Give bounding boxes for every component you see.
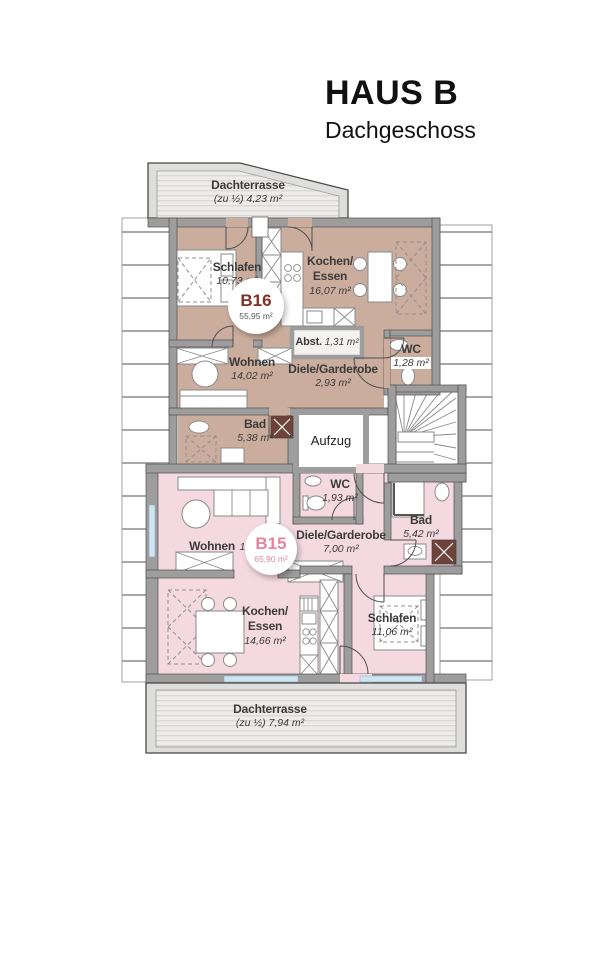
apartment-badge-b15: B15 65,90 m² [245, 523, 297, 575]
bed-icon-b16 [174, 250, 236, 306]
chimney-block [252, 217, 268, 237]
apartment-badge-b16: B16 55,95 m² [228, 278, 284, 334]
elevator-label: Aufzug [298, 433, 364, 448]
floor-plan-page: HAUS B Dachgeschoss [0, 0, 611, 960]
terrace-bottom-shape [146, 683, 466, 753]
bed-icon-b15 [374, 596, 432, 650]
terrace-top-shape [148, 163, 348, 218]
stairs-icon [396, 392, 458, 473]
floor-plan-drawing [0, 0, 611, 960]
storage-room-abst [292, 328, 362, 357]
